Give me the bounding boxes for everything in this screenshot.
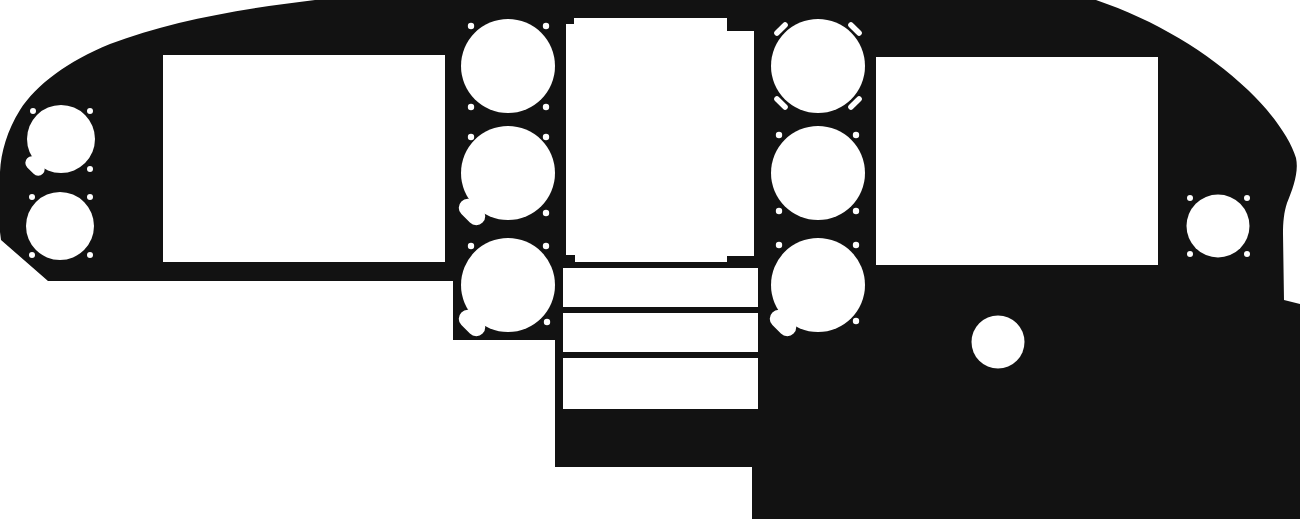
right-column-mid-instrument (771, 126, 865, 220)
screw-hole (87, 166, 93, 172)
screw-hole (776, 132, 782, 138)
radio-stack-cutout (566, 18, 754, 262)
instrument-panel-silhouette (0, 0, 1300, 523)
instrument-panel-diagram (0, 0, 1300, 523)
screw-hole (29, 194, 35, 200)
left-column-top-instrument (461, 19, 555, 113)
screw-hole (543, 104, 549, 110)
radio-notch-top-right (727, 18, 754, 31)
screw-hole (468, 104, 474, 110)
screw-hole (853, 132, 859, 138)
screw-hole (1187, 251, 1193, 257)
screw-hole (29, 252, 35, 258)
right-display-cutout (876, 57, 1158, 265)
radio-slot-3 (563, 358, 758, 409)
screw-hole (543, 210, 549, 216)
left-display-cutout (163, 55, 445, 262)
screw-hole (87, 194, 93, 200)
screw-hole (1187, 195, 1193, 201)
screw-hole (853, 242, 859, 248)
screw-hole (543, 243, 549, 249)
screw-hole (853, 208, 859, 214)
lower-right-round-hole (972, 316, 1025, 369)
screw-hole (87, 108, 93, 114)
radio-notch-bottom-right (727, 256, 754, 262)
screw-hole (544, 319, 550, 325)
radio-notch-top-left (566, 18, 574, 24)
screw-hole (543, 134, 549, 140)
screw-hole (468, 134, 474, 140)
screw-hole (468, 23, 474, 29)
radio-notch-bottom-left (566, 255, 575, 262)
screw-hole (30, 108, 36, 114)
far-right-instrument (1187, 195, 1250, 258)
radio-slot-2 (563, 313, 758, 352)
screw-hole (468, 243, 474, 249)
screw-hole (1244, 251, 1250, 257)
radio-slot-1 (563, 268, 758, 307)
screw-hole (853, 318, 859, 324)
screw-hole (543, 23, 549, 29)
far-left-bottom-instrument (26, 192, 94, 260)
right-column-top-instrument (771, 19, 865, 113)
screw-hole (776, 208, 782, 214)
screw-hole (87, 252, 93, 258)
screw-hole (1244, 195, 1250, 201)
screw-hole (776, 242, 782, 248)
